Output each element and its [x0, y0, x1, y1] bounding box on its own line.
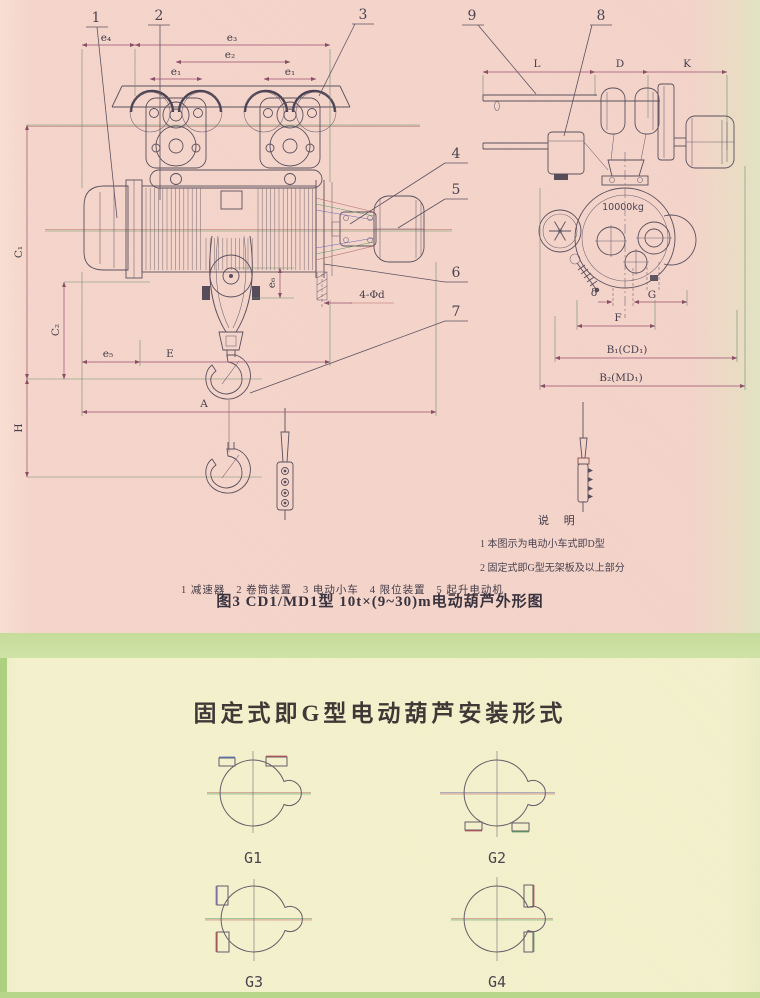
rope-winding-hatch	[146, 188, 313, 270]
variant-label-g1: G1	[244, 849, 262, 867]
dim-label-e1-right: e₁	[285, 66, 295, 78]
variant-g2-diagram: G2	[440, 751, 555, 867]
callout-8: 8	[597, 8, 606, 24]
figure-caption: 图3 CD1/MD1型 10t×(9~30)m电动葫芦外形图	[0, 590, 760, 611]
note-item-1: 1 本图示为电动小车式即D型	[480, 533, 625, 557]
page-edge-left	[0, 658, 7, 998]
front-view-dimensions: e₄ e₃ e₂ e₁ e₁ C₁ C₂ H	[13, 32, 436, 477]
dim-label-A: A	[199, 398, 208, 410]
section-divider	[0, 633, 760, 658]
trolley-left	[130, 91, 222, 168]
dim-label-e6: e₆	[266, 278, 278, 288]
note-item-2: 2 固定式即G型无架板及以上部分	[480, 557, 625, 581]
upper-hook	[206, 355, 251, 399]
lowered-hook	[206, 442, 251, 493]
dim-label-e3: e₃	[227, 32, 237, 44]
variant-label-g2: G2	[488, 849, 506, 867]
dim-label-H: H	[13, 423, 25, 432]
dim-label-D: D	[616, 58, 624, 70]
dim-label-L: L	[534, 58, 541, 70]
runway-beam	[112, 86, 350, 107]
dim-label-K: K	[683, 58, 691, 70]
trolley-right	[244, 91, 336, 168]
callout-4: 4	[452, 146, 461, 162]
pendant-control	[277, 408, 293, 520]
dim-label-e5: e₅	[103, 348, 113, 360]
front-view-callouts: 1 2 3 4 5 6	[86, 7, 468, 393]
dim-label-B2: B₂(MD₁)	[599, 372, 643, 384]
notes-block: 说 明 1 本图示为电动小车式即D型 2 固定式即G型无架板及以上部分	[480, 509, 625, 581]
notes-title: 说 明	[538, 509, 625, 533]
dim-label-C1: C₁	[13, 246, 25, 258]
variant-g4-diagram: G4	[451, 877, 553, 991]
callout-7: 7	[452, 304, 461, 320]
catalog-page: e₄ e₃ e₂ e₁ e₁ C₁ C₂ H	[0, 0, 760, 998]
variant-g1-diagram: G1	[207, 751, 311, 867]
page-edge-bottom	[0, 992, 760, 998]
installation-forms-drawing: G1 G2	[0, 658, 760, 998]
callout-1: 1	[92, 10, 101, 26]
variant-label-g3: G3	[245, 973, 263, 991]
side-trolley-drive	[601, 84, 734, 168]
electric-control-box	[548, 132, 608, 180]
hanger-beam	[150, 170, 322, 188]
gear-reducer-case	[84, 180, 142, 278]
callout-6: 6	[452, 265, 461, 281]
side-view-dimensions-top: L D K	[483, 58, 727, 150]
dim-label-e4: e₄	[101, 32, 111, 44]
rope-drum	[142, 180, 332, 278]
pendant-control-side	[578, 402, 593, 512]
limit-device	[332, 212, 376, 246]
callout-5: 5	[452, 182, 461, 198]
load-capacity-label: 10000kg	[602, 202, 644, 213]
variant-g3-diagram: G3	[205, 879, 312, 991]
side-view-dimensions-bottom: δ G F B₁(CD₁) B₂(MD₁)	[540, 166, 745, 390]
dim-label-e1-left: e₁	[171, 66, 181, 78]
side-view: 9 8 L D K	[462, 8, 745, 512]
callout-3: 3	[359, 7, 368, 23]
dim-label-e2: e₂	[225, 49, 235, 61]
dim-label-delta: δ	[591, 287, 597, 299]
dim-label-B1: B₁(CD₁)	[607, 344, 648, 356]
outline-drawing-sheet: e₄ e₃ e₂ e₁ e₁ C₁ C₂ H	[0, 0, 760, 633]
installation-forms-sheet: 固定式即G型电动葫芦安装形式 G1	[0, 658, 760, 998]
dim-label-C2: C₂	[50, 324, 62, 336]
dim-label-G: G	[648, 289, 656, 301]
rope-guide-wheel	[539, 210, 581, 252]
dim-label-F: F	[614, 312, 621, 324]
dim-label-bolt-holes: 4-Φd	[359, 289, 385, 301]
front-view: e₄ e₃ e₂ e₁ e₁ C₁ C₂ H	[13, 7, 468, 520]
dim-label-E: E	[166, 348, 174, 360]
datum-centerlines	[27, 125, 452, 477]
callout-2: 2	[155, 8, 164, 24]
callout-9: 9	[468, 8, 477, 24]
variant-label-g4: G4	[488, 973, 506, 991]
